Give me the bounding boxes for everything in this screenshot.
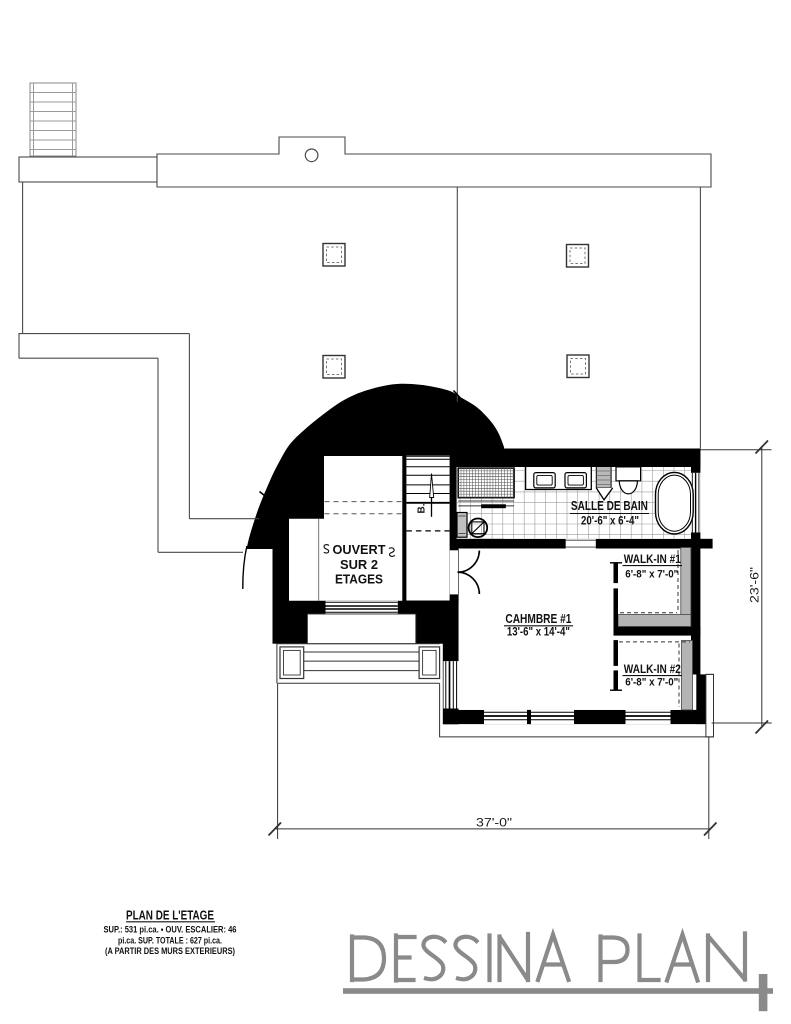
svg-text:WALK-IN #2: WALK-IN #2 [624,664,681,676]
svg-text:37'-0": 37'-0" [476,818,512,830]
svg-text:20'-6" x 6'-4": 20'-6" x 6'-4" [581,516,639,528]
svg-text:pi.ca. SUP. TOTALE : 627 pi.ca: pi.ca. SUP. TOTALE : 627 pi.ca. [118,935,222,946]
svg-text:CAHMBRE #1: CAHMBRE #1 [505,612,571,626]
svg-text:6'-8" x 7'-0": 6'-8" x 7'-0" [625,676,678,688]
svg-text:SUR 2: SUR 2 [340,558,378,572]
svg-text:ETAGES: ETAGES [335,573,383,587]
svg-text:PLAN DE L'ETAGE: PLAN DE L'ETAGE [126,908,214,923]
svg-text:SALLE DE BAIN: SALLE DE BAIN [571,498,648,513]
svg-text:SUP.: 531 pi.ca. • OUV. ESCALI: SUP.: 531 pi.ca. • OUV. ESCALIER: 46 [104,924,237,935]
svg-text:6'-8" x 7'-0": 6'-8" x 7'-0" [625,568,678,580]
svg-text:(A PARTIR DES MURS EXTERIEURS): (A PARTIR DES MURS EXTERIEURS) [105,946,235,957]
svg-text:13'-6" x 14'-4": 13'-6" x 14'-4" [507,626,570,638]
svg-text:WALK-IN #1: WALK-IN #1 [624,554,682,566]
svg-text:OUVERT: OUVERT [333,543,386,557]
svg-text:B.: B. [417,503,428,513]
svg-text:23'-6": 23'-6" [750,567,762,603]
